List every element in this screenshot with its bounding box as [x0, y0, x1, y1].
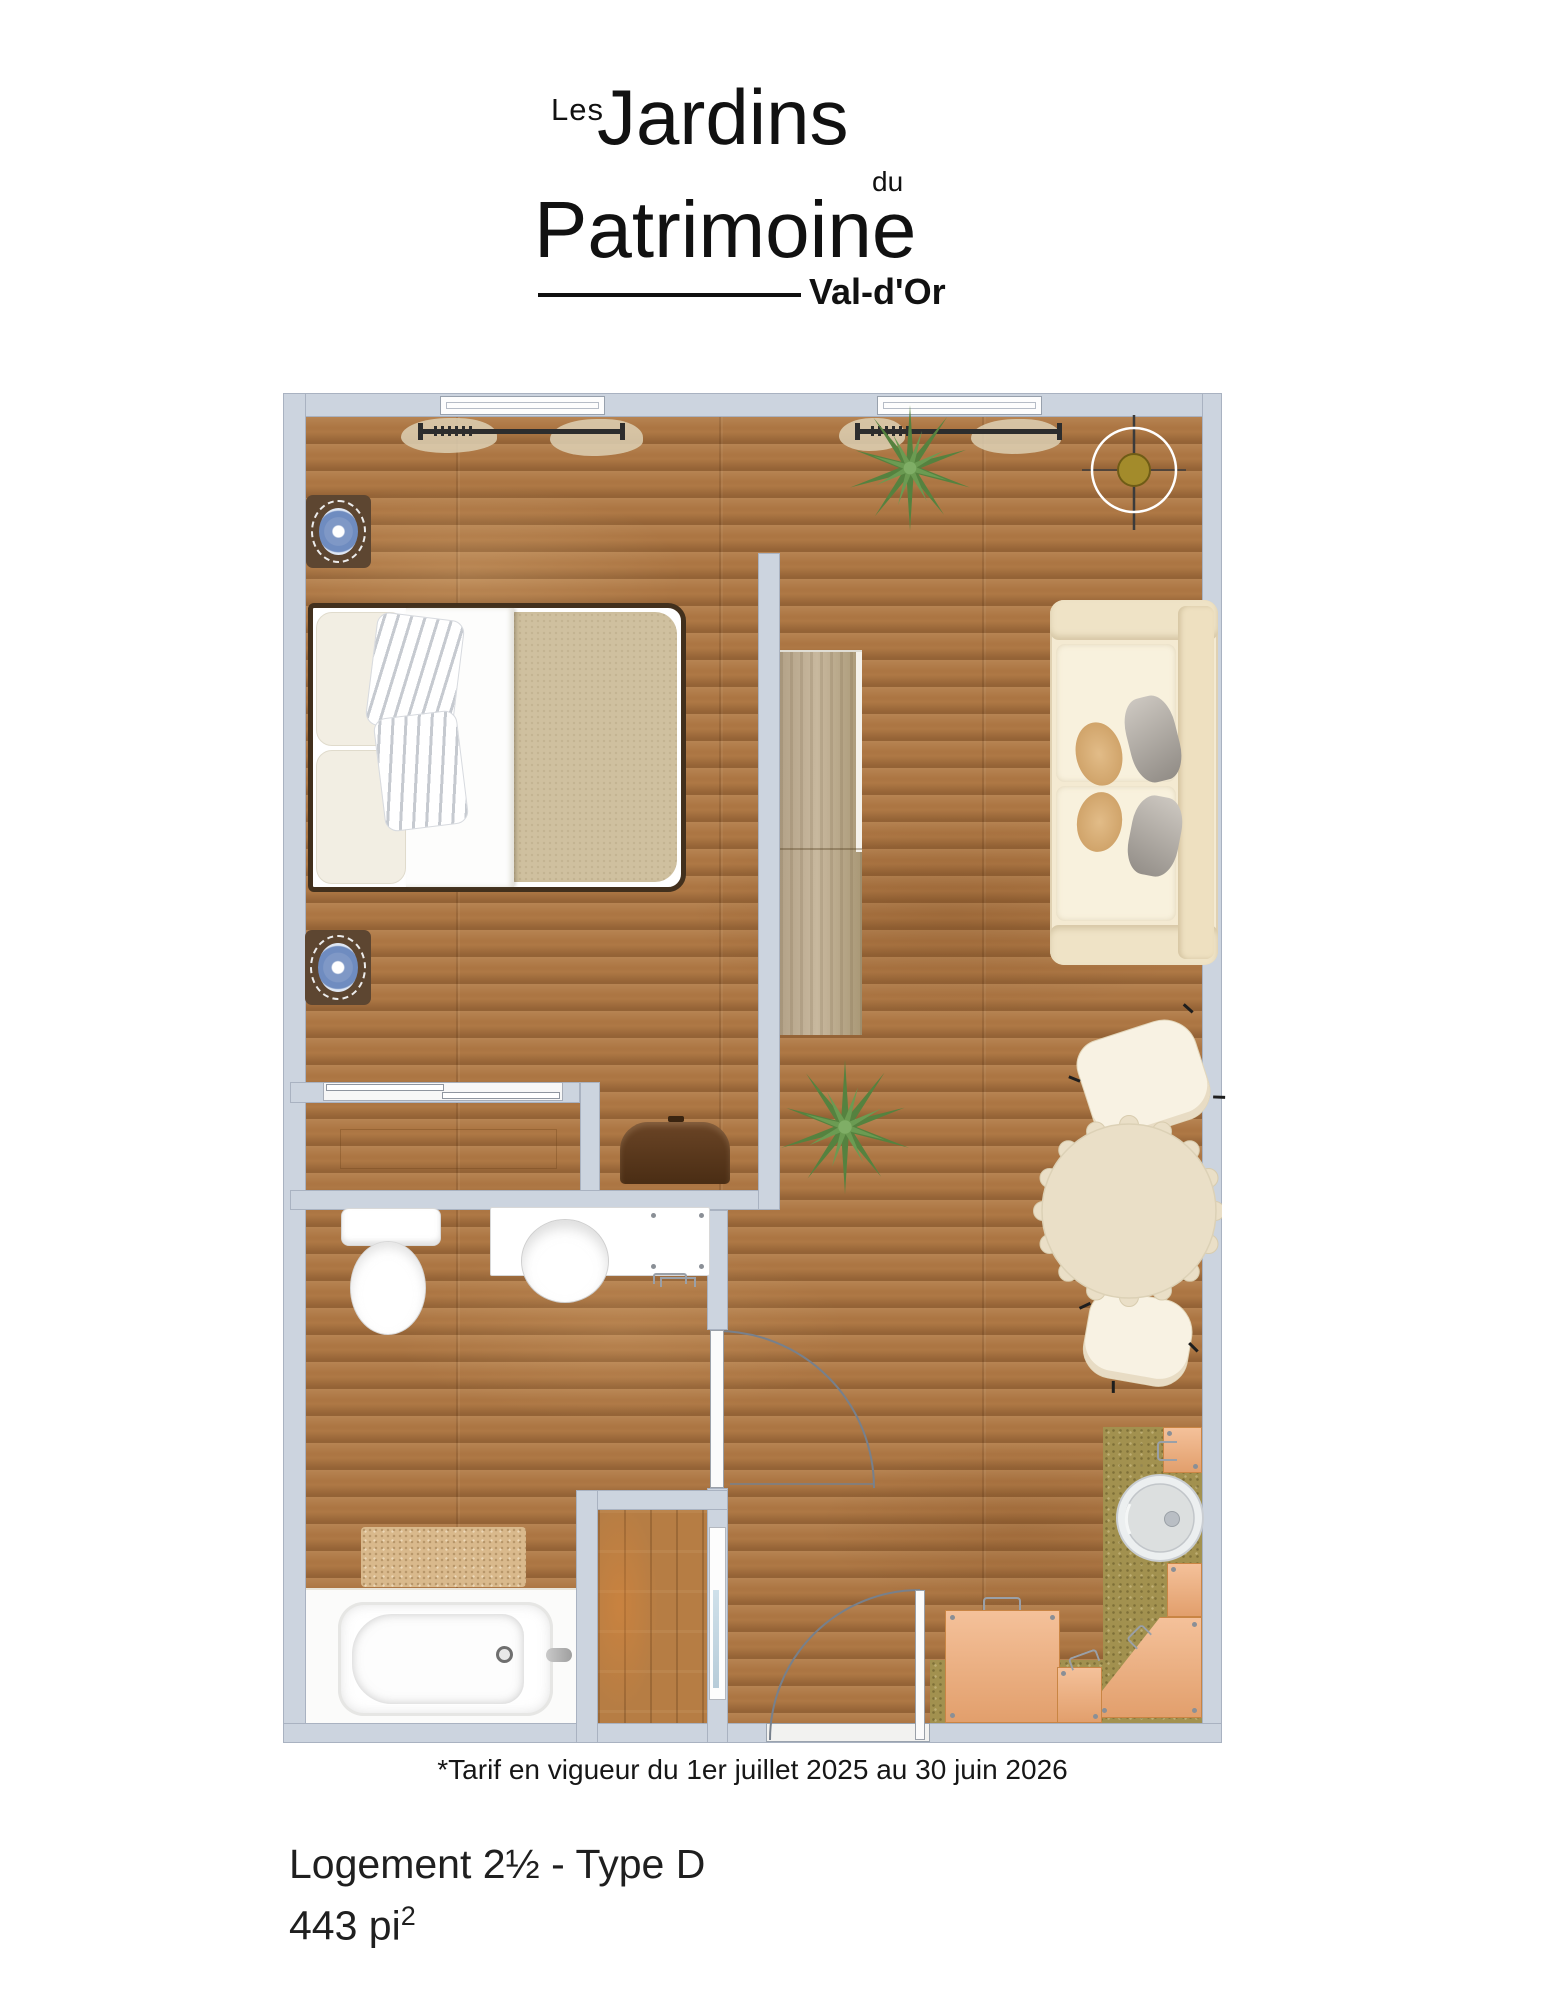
unit-title: Logement 2½ - Type D	[289, 1841, 705, 1888]
floor-plan	[283, 393, 1222, 1743]
bathroom-door	[710, 1330, 724, 1488]
plan-overlay	[283, 393, 1222, 1743]
kitchen-sink	[1117, 1475, 1203, 1561]
unit-area: 443 pi2	[289, 1901, 416, 1950]
logo-city: Val-d'Or	[809, 271, 946, 313]
unit-area-value: 443 pi	[289, 1903, 401, 1949]
logo-jardins: Jardins	[597, 72, 848, 163]
door-swing-arcs	[717, 1331, 920, 1740]
logo-patrimoine: Patrimoine	[534, 184, 916, 276]
entry-door	[915, 1590, 925, 1740]
plant-icon	[780, 1060, 911, 1194]
plant-icon	[849, 405, 971, 531]
ceiling-light-icon	[1082, 415, 1186, 530]
unit-area-exponent: 2	[401, 1901, 416, 1931]
page: Les Jardins du Patrimoine Val-d'Or	[0, 0, 1545, 2000]
dining-table	[1034, 1116, 1223, 1307]
tarif-note: *Tarif en vigueur du 1er juillet 2025 au…	[283, 1754, 1222, 1786]
logo-rule	[538, 293, 801, 297]
